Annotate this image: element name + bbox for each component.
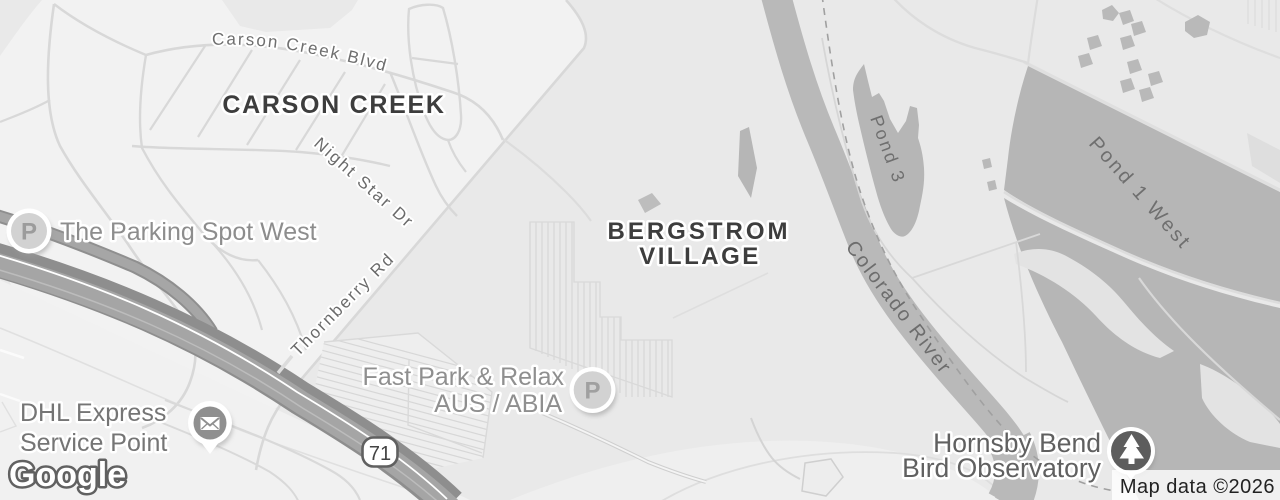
svg-text:Map data ©2026: Map data ©2026 [1120,476,1275,498]
svg-text:DHL Express: DHL Express [20,399,166,427]
svg-text:CARSON CREEK: CARSON CREEK [222,91,445,119]
svg-text:Google: Google [9,456,126,494]
svg-text:VILLAGE: VILLAGE [639,243,761,270]
svg-text:BERGSTROM: BERGSTROM [608,218,791,245]
svg-text:The Parking Spot West: The Parking Spot West [60,218,317,246]
svg-text:71: 71 [369,443,391,465]
svg-text:P: P [21,219,37,246]
svg-text:Service Point: Service Point [20,429,167,457]
svg-text:P: P [584,378,600,405]
svg-text:Fast Park & Relax: Fast Park & Relax [363,363,565,391]
svg-text:AUS / ABIA: AUS / ABIA [434,390,562,418]
svg-text:Bird Observatory: Bird Observatory [902,453,1102,483]
